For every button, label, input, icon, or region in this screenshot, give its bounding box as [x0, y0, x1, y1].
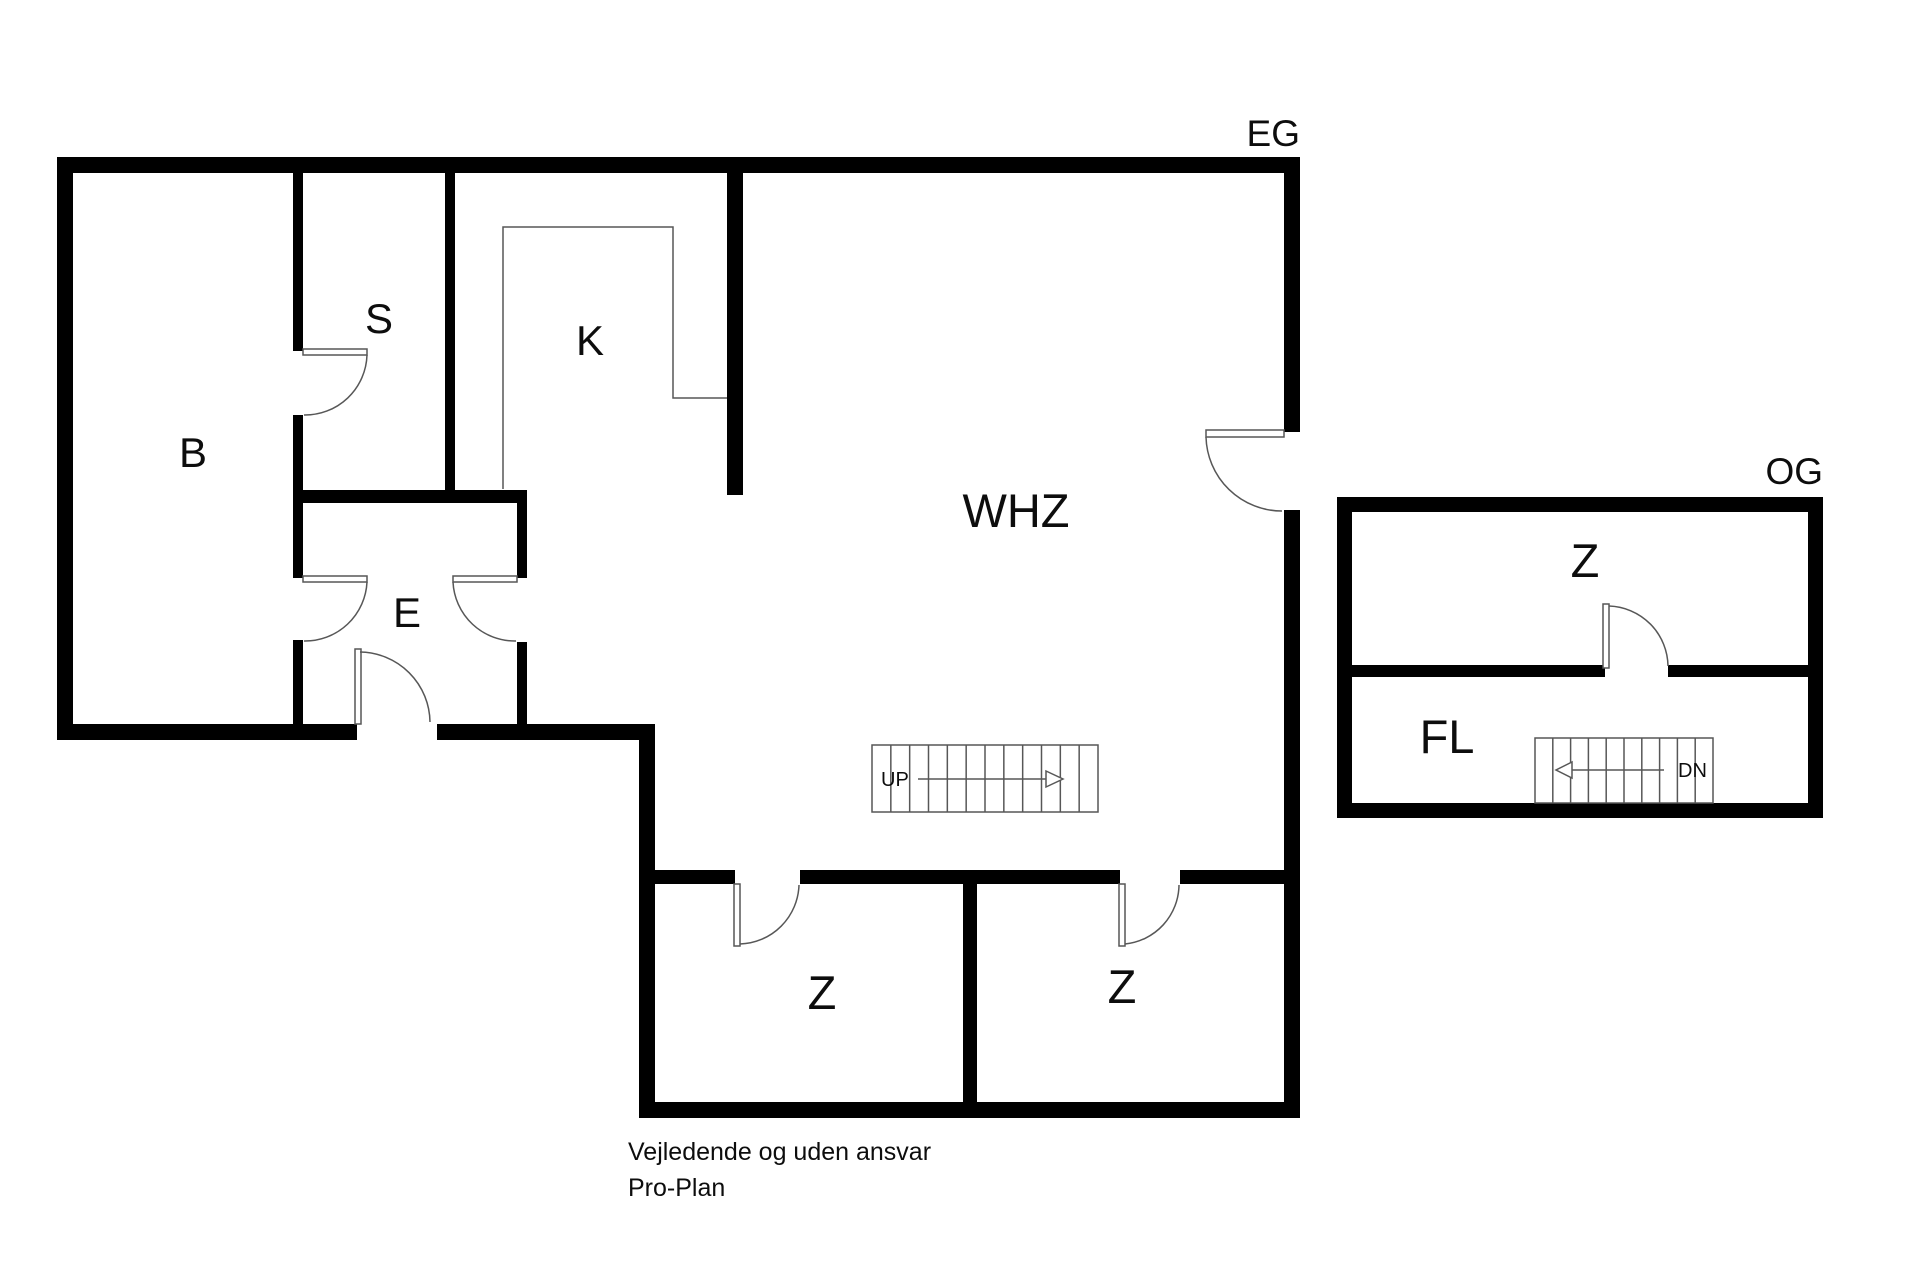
footer-line-2: Pro-Plan [628, 1174, 725, 1202]
room-label-z-right: Z [1108, 960, 1137, 1013]
door-z-right [1119, 884, 1179, 946]
room-label-whz: WHZ [962, 484, 1069, 537]
eg-wall-bottom [639, 1102, 1300, 1118]
door-s [303, 349, 367, 415]
eg-wall-right-lower [1284, 510, 1300, 1118]
footer-disclaimer: Vejledende og uden ansvar Pro-Plan [628, 1138, 931, 1202]
staircase-down-label: DN [1678, 760, 1707, 782]
eg-wall-z-top-a [655, 870, 735, 884]
eg-wall-k-whz [727, 173, 743, 495]
door-entry-leaf [355, 649, 361, 724]
door-e-whz [453, 576, 517, 641]
door-z-right-swing-arc [1125, 885, 1179, 944]
og-floor-plan: DN OG Z FL [1337, 451, 1823, 818]
room-label-k: K [576, 317, 604, 364]
eg-wall-e-right-lower [517, 642, 527, 724]
room-label-b: B [179, 429, 207, 476]
door-og-z [1603, 604, 1668, 668]
room-label-og-z: Z [1571, 534, 1600, 587]
door-b-e-leaf [303, 576, 367, 582]
eg-wall-s-k [445, 173, 455, 503]
door-b-e-swing-arc [304, 582, 367, 641]
eg-wall-e-top [293, 490, 527, 503]
eg-wall-step [639, 724, 655, 1118]
door-entry-swing-arc [360, 652, 430, 722]
eg-wall-right-upper [1284, 157, 1300, 432]
room-label-e: E [393, 589, 421, 636]
door-whz-right-leaf [1206, 430, 1284, 437]
door-z-left-swing-arc [740, 885, 799, 944]
og-wall-mid-left [1337, 665, 1605, 677]
door-entry [355, 649, 430, 724]
eg-wall-bottom-left-b [437, 724, 655, 740]
door-e-whz-swing-arc [453, 582, 516, 641]
staircase-up-label: UP [881, 769, 909, 791]
kitchen-counter-outline [503, 227, 727, 489]
room-label-fl: FL [1420, 710, 1475, 763]
door-whz-right [1206, 430, 1284, 511]
eg-wall-z-divider [963, 884, 977, 1102]
eg-wall-e-right-upper [517, 503, 527, 578]
door-z-left [734, 884, 799, 946]
og-wall-left [1337, 497, 1352, 818]
footer-line-1: Vejledende og uden ansvar [628, 1138, 931, 1166]
door-z-right-leaf [1119, 884, 1125, 946]
og-interior-walls [1337, 665, 1823, 677]
door-b-e [303, 576, 367, 641]
staircase-down: DN [1535, 738, 1713, 803]
og-floor-label: OG [1765, 451, 1823, 492]
door-e-whz-leaf [453, 576, 517, 582]
eg-wall-left [57, 157, 73, 740]
door-s-swing-arc [304, 355, 367, 415]
door-z-left-leaf [734, 884, 740, 946]
eg-wall-bottom-left-a [57, 724, 357, 740]
og-wall-top [1337, 497, 1823, 512]
og-wall-right [1808, 497, 1823, 818]
room-label-z-left: Z [808, 966, 837, 1019]
door-og-z-swing-arc [1609, 606, 1668, 666]
door-whz-right-swing-arc [1206, 437, 1282, 511]
door-s-leaf [303, 349, 367, 355]
eg-wall-top [57, 157, 1300, 173]
eg-wall-z-top-c [1180, 870, 1284, 884]
room-label-s: S [365, 295, 393, 342]
eg-floor-plan: UP EG B S K E WHZ Z Z [57, 113, 1300, 1118]
og-wall-mid-right [1668, 665, 1823, 677]
eg-wall-z-top-b [800, 870, 1120, 884]
staircase-up: UP [872, 745, 1098, 812]
eg-floor-label: EG [1247, 113, 1300, 154]
eg-wall-b-s-upper [293, 173, 303, 351]
og-wall-bottom [1337, 803, 1823, 818]
eg-wall-b-s-lower [293, 640, 303, 724]
door-og-z-leaf [1603, 604, 1609, 668]
floor-plan-drawing: UP EG B S K E WHZ Z Z [0, 0, 1920, 1280]
